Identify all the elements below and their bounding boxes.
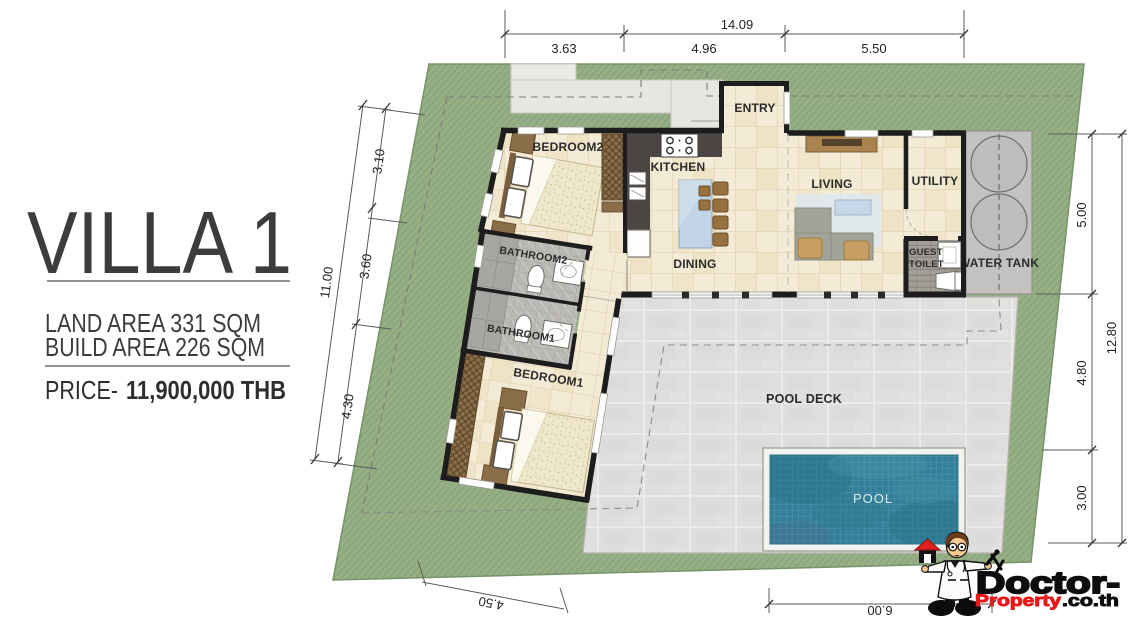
svg-text:POOL: POOL	[853, 491, 893, 506]
svg-text:POOL DECK: POOL DECK	[766, 392, 842, 406]
svg-text:BEDROOM2: BEDROOM2	[533, 140, 604, 154]
svg-text:TOILET: TOILET	[909, 259, 944, 270]
svg-text:LIVING: LIVING	[811, 177, 852, 191]
svg-text:ENTRY: ENTRY	[734, 101, 775, 115]
svg-text:PRICE-: PRICE-	[45, 375, 118, 405]
svg-text:KITCHEN: KITCHEN	[651, 160, 706, 174]
svg-text:VILLA 1: VILLA 1	[27, 193, 292, 292]
svg-text:Property: Property	[975, 591, 1062, 610]
svg-text:6.00: 6.00	[867, 603, 892, 618]
svg-text:DINING: DINING	[673, 257, 716, 271]
svg-text:WATER TANK: WATER TANK	[959, 256, 1039, 270]
svg-text:4.80: 4.80	[1074, 360, 1089, 385]
svg-text:BUILD AREA 226 SQM: BUILD AREA 226 SQM	[45, 332, 265, 362]
svg-text:3.63: 3.63	[551, 41, 576, 56]
svg-text:11,900,000 THB: 11,900,000 THB	[126, 375, 286, 405]
svg-text:5.50: 5.50	[861, 41, 886, 56]
svg-text:3.00: 3.00	[1074, 485, 1089, 510]
svg-text:14.09: 14.09	[721, 17, 754, 32]
svg-text:UTILITY: UTILITY	[912, 174, 959, 188]
svg-text:.co.th: .co.th	[1062, 591, 1119, 610]
svg-text:4.96: 4.96	[691, 41, 716, 56]
svg-text:GUEST: GUEST	[909, 247, 943, 258]
svg-text:12.80: 12.80	[1104, 322, 1119, 355]
svg-text:5.00: 5.00	[1074, 202, 1089, 227]
